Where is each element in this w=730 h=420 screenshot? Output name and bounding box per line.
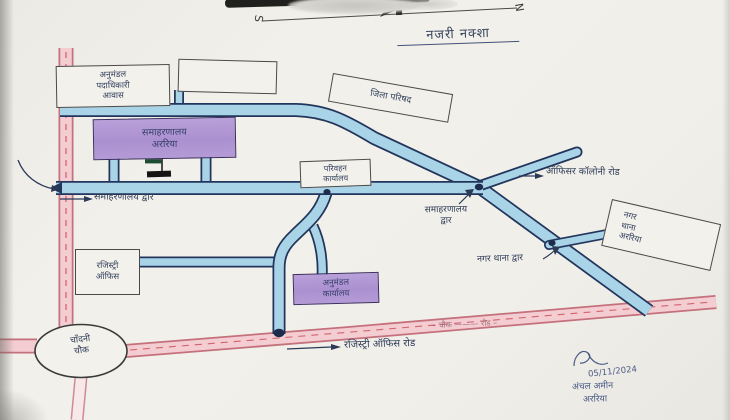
collectorate-gate-west-label: समाहरणालय द्वार bbox=[94, 191, 224, 204]
sketch-map-page: S N नजरी नक्शा अनुमंडल पदाधिकारी आवास जि… bbox=[0, 0, 730, 420]
compass-south: S bbox=[252, 14, 266, 23]
registry-office-box: रजिस्ट्री ऑफिस bbox=[75, 249, 140, 295]
collectorate-box: समाहरणालय अररिया bbox=[93, 117, 237, 160]
collectorate-gate-south-label: समाहरणालय द्वार bbox=[398, 204, 494, 228]
sdo-residence-box: अनुमंडल पदाधिकारी आवास bbox=[56, 64, 171, 108]
map-title: नजरी नक्शा bbox=[397, 22, 520, 46]
signature-place: अररिया bbox=[583, 393, 643, 406]
curved-swoosh bbox=[18, 160, 54, 189]
signature-mark bbox=[574, 351, 608, 366]
officer-colony-road-label: ऑफिसर कॉलोनी रोड bbox=[546, 166, 691, 180]
subdivision-office-box: अनुमंडल कार्यालय bbox=[293, 272, 380, 305]
registry-road-arrow bbox=[287, 347, 331, 349]
transport-office-box: परिवहन कार्यालय bbox=[300, 159, 372, 188]
unlabeled-box bbox=[178, 59, 278, 95]
